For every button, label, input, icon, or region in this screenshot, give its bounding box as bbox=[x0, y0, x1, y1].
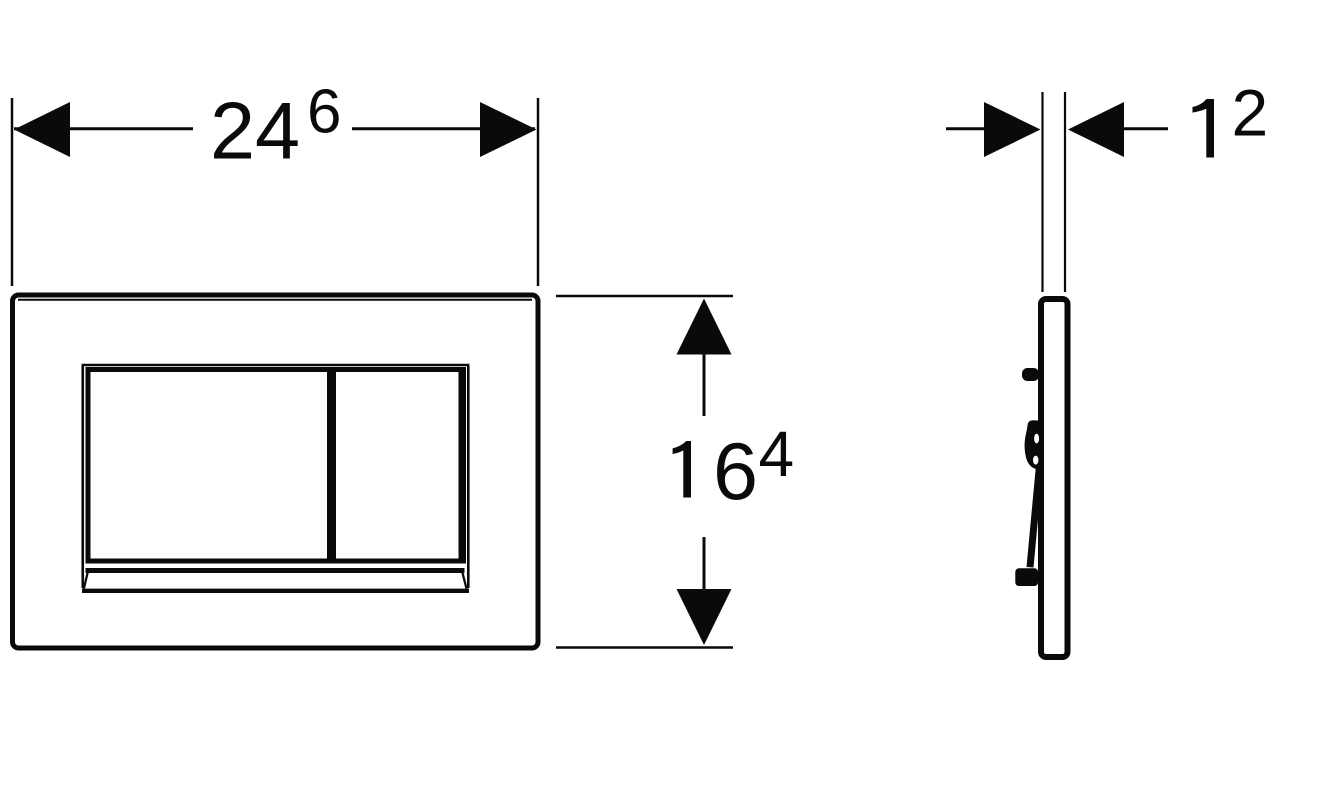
svg-text:6: 6 bbox=[713, 427, 758, 517]
svg-text:6: 6 bbox=[307, 78, 341, 147]
svg-text:24: 24 bbox=[210, 87, 300, 177]
svg-text:2: 2 bbox=[1232, 76, 1269, 150]
svg-text:4: 4 bbox=[759, 418, 795, 490]
